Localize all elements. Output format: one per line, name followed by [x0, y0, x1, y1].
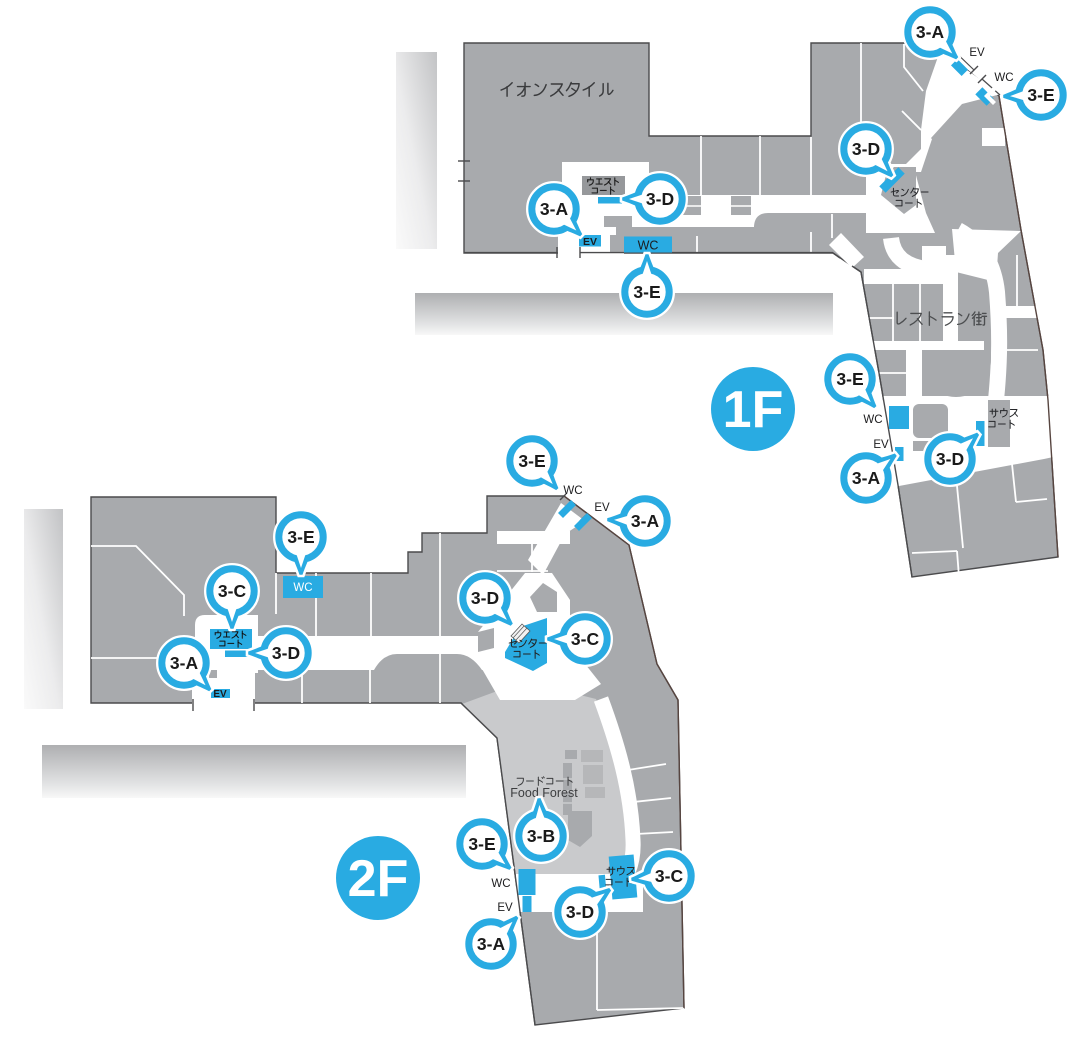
svg-text:EV: EV: [583, 236, 597, 248]
svg-text:WC: WC: [293, 582, 312, 594]
svg-text:3-A: 3-A: [916, 22, 945, 42]
svg-text:3-A: 3-A: [477, 934, 506, 954]
svg-text:WC: WC: [863, 414, 882, 426]
svg-text:Food Forest: Food Forest: [510, 786, 578, 800]
svg-text:1F: 1F: [723, 381, 784, 439]
svg-text:3-A: 3-A: [631, 511, 660, 531]
svg-text:3-D: 3-D: [936, 449, 964, 469]
svg-text:WC: WC: [491, 878, 510, 890]
svg-text:EV: EV: [594, 502, 610, 514]
svg-text:EV: EV: [969, 47, 985, 59]
svg-text:3-E: 3-E: [287, 527, 314, 547]
svg-text:3-D: 3-D: [272, 643, 300, 663]
svg-text:2F: 2F: [348, 850, 409, 908]
svg-text:3-C: 3-C: [655, 866, 684, 886]
svg-text:3-A: 3-A: [170, 653, 199, 673]
svg-text:3-B: 3-B: [527, 826, 555, 846]
svg-text:WC: WC: [563, 485, 582, 497]
svg-text:WC: WC: [994, 72, 1013, 84]
svg-text:3-E: 3-E: [468, 834, 495, 854]
svg-text:3-C: 3-C: [571, 629, 600, 649]
svg-text:3-D: 3-D: [566, 902, 594, 922]
svg-text:3-D: 3-D: [852, 139, 880, 159]
svg-text:3-E: 3-E: [836, 369, 863, 389]
svg-text:3-E: 3-E: [1027, 85, 1054, 105]
svg-text:3-D: 3-D: [646, 189, 674, 209]
svg-text:EV: EV: [873, 439, 889, 451]
svg-text:3-E: 3-E: [633, 282, 660, 302]
svg-text:3-A: 3-A: [540, 199, 569, 219]
svg-text:WC: WC: [638, 239, 659, 253]
svg-text:3-A: 3-A: [852, 468, 881, 488]
svg-text:EV: EV: [213, 689, 227, 700]
svg-text:3-D: 3-D: [471, 588, 499, 608]
svg-text:EV: EV: [497, 902, 513, 914]
svg-text:3-E: 3-E: [518, 451, 545, 471]
svg-text:3-C: 3-C: [218, 581, 247, 601]
